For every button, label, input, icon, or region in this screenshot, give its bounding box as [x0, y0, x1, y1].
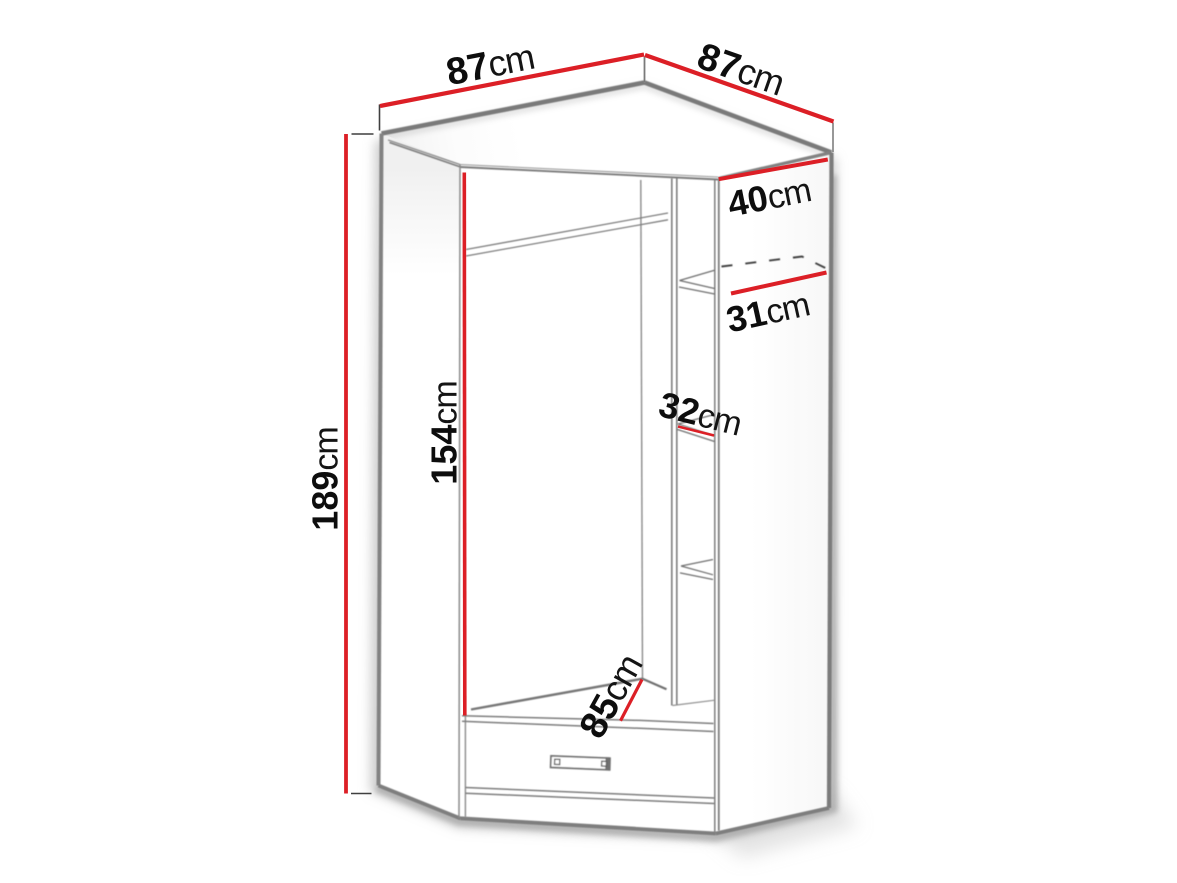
svg-text:189cm: 189cm — [305, 427, 346, 530]
svg-text:87cm: 87cm — [692, 36, 789, 105]
svg-text:87cm: 87cm — [443, 36, 538, 94]
svg-text:154cm: 154cm — [424, 381, 465, 484]
